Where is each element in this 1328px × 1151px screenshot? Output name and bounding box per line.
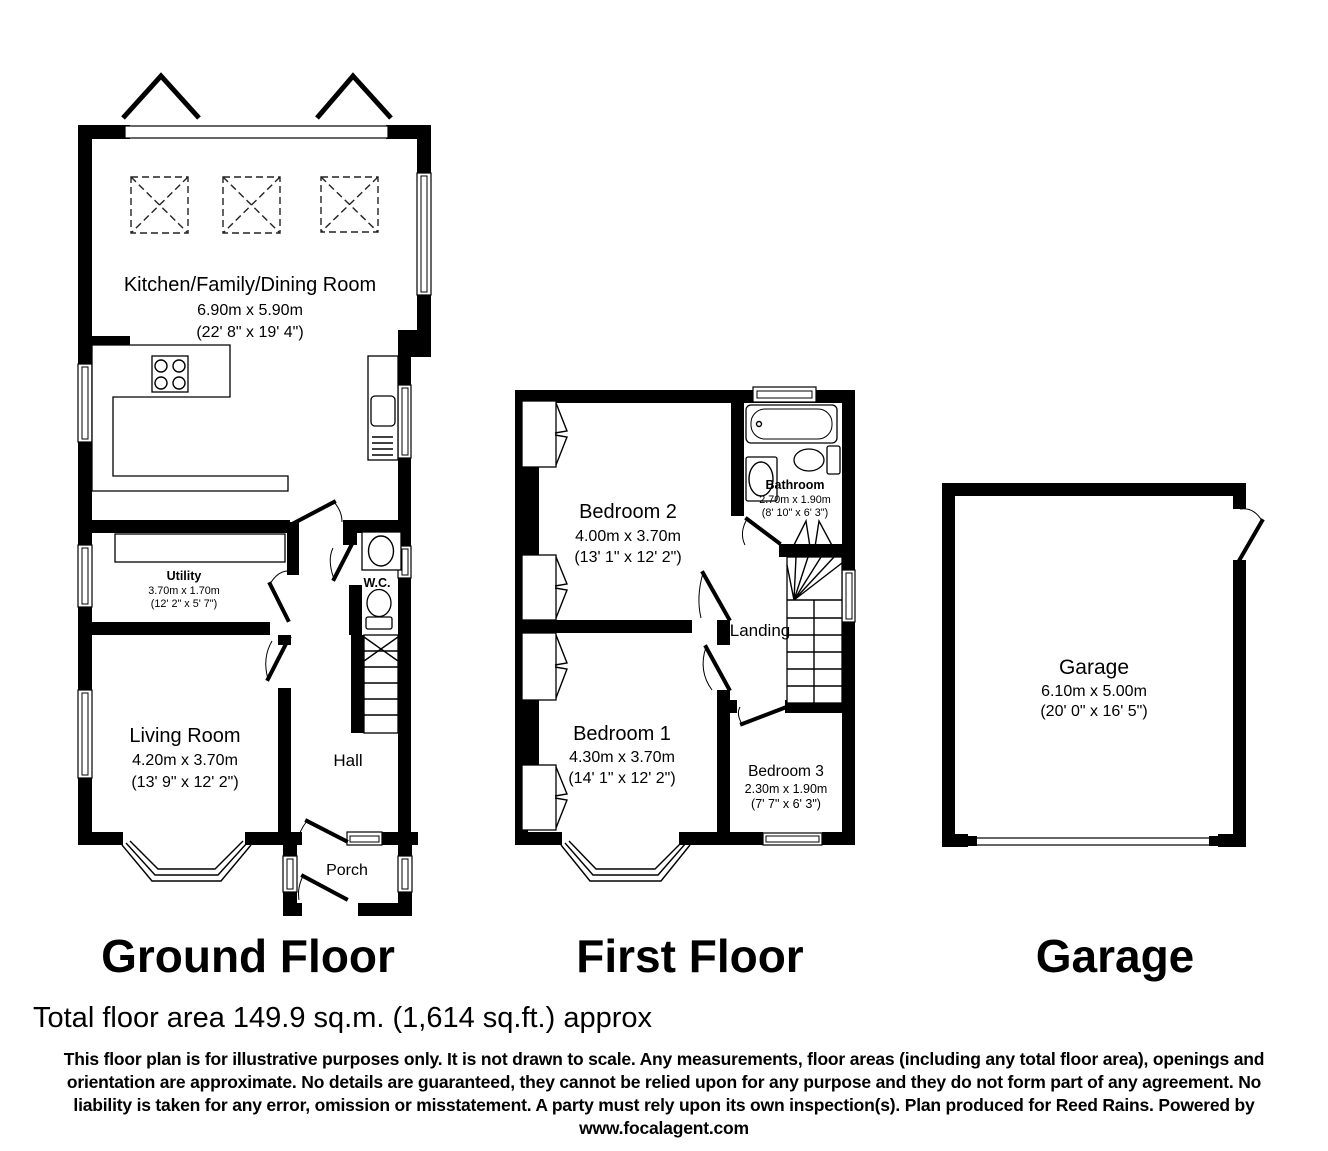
bathroom-label: Bathroom (765, 478, 824, 492)
utility-label: Utility (167, 569, 202, 583)
rooflight-icon (223, 177, 280, 233)
kitchen-dim-m: 6.90m x 5.90m (197, 302, 303, 319)
utility-counter (115, 534, 285, 562)
bedroom3-label: Bedroom 3 (748, 763, 824, 780)
garage-title: Garage (1036, 929, 1195, 983)
bedroom2-dim-ft: (13' 1" x 12' 2") (574, 549, 681, 566)
door (703, 647, 729, 690)
door (294, 502, 342, 523)
ground-floor-walls (78, 125, 431, 916)
bedroom2-label: Bedroom 2 (579, 501, 677, 523)
wardrobe-icon (522, 555, 567, 620)
ground-floor-title: Ground Floor (101, 929, 395, 983)
stairs-icon (364, 635, 398, 733)
door (299, 876, 347, 900)
utility-dim-m: 3.70m x 1.70m (148, 585, 219, 597)
living-room-label: Living Room (129, 725, 240, 747)
stairs-icon (787, 557, 842, 703)
garage-door (968, 836, 1218, 846)
bedroom2-dim-m: 4.00m x 3.70m (575, 528, 681, 545)
window (347, 832, 382, 845)
floor-plan-page: Kitchen/Family/Dining Room 6.90m x 5.90m… (0, 0, 1328, 1151)
bedroom1-dim-m: 4.30m x 3.70m (569, 749, 675, 766)
porch-label: Porch (326, 862, 368, 879)
bathroom-dim-ft: (8' 10" x 6' 3") (762, 507, 828, 519)
roof-arrow-icon (123, 76, 199, 118)
window (842, 570, 855, 622)
bath-icon (746, 405, 837, 443)
roof-arrow-icon (317, 76, 391, 118)
basin-icon (362, 532, 401, 570)
landing-label: Landing (730, 621, 791, 640)
wardrobe-icon (522, 401, 567, 467)
bay-window (122, 841, 251, 881)
kitchen-counter (92, 345, 288, 491)
window (283, 856, 297, 892)
wc-label: W.C. (363, 576, 390, 590)
garage-dim-ft: (20' 0" x 16' 5") (1040, 703, 1147, 720)
hall-label: Hall (333, 751, 362, 770)
disclaimer-line: orientation are approximate. No details … (0, 1071, 1328, 1094)
toilet-icon (794, 446, 840, 474)
disclaimer-line: This floor plan is for illustrative purp… (0, 1048, 1328, 1071)
bay-window (561, 841, 690, 881)
door (699, 573, 729, 619)
toilet-icon (366, 590, 392, 630)
first-floor-title: First Floor (576, 929, 803, 983)
disclaimer-line: www.focalagent.com (0, 1117, 1328, 1140)
window (78, 690, 92, 778)
kitchen-dim-ft: (22' 8" x 19' 4") (196, 324, 303, 341)
window (398, 856, 412, 892)
kitchen-bifold-opening (125, 126, 388, 138)
wardrobe-icon (522, 633, 567, 700)
door (266, 638, 289, 679)
door (330, 546, 351, 579)
bedroom3-dim-m: 2.30m x 1.90m (745, 782, 828, 796)
window (398, 385, 411, 458)
sink-icon (368, 356, 398, 460)
bedroom1-dim-ft: (14' 1" x 12' 2") (568, 770, 675, 787)
wardrobe-icon (522, 765, 567, 830)
bedroom1-label: Bedroom 1 (573, 723, 671, 745)
utility-dim-ft: (12' 2" x 5' 7") (151, 598, 217, 610)
disclaimer-line: liability is taken for any error, omissi… (0, 1094, 1328, 1117)
door (742, 519, 779, 545)
ground-floor-plan: Kitchen/Family/Dining Room 6.90m x 5.90m… (78, 76, 431, 916)
bathroom-dim-m: 2.70m x 1.90m (759, 494, 830, 506)
door (298, 821, 346, 841)
kitchen-label: Kitchen/Family/Dining Room (124, 274, 376, 296)
disclaimer: This floor plan is for illustrative purp… (0, 1048, 1328, 1140)
bedroom3-dim-ft: (7' 7" x 6' 3") (751, 797, 821, 811)
rooflight-icon (321, 177, 378, 232)
window (417, 173, 431, 295)
door (270, 571, 288, 620)
hob-icon (152, 356, 188, 392)
window (763, 833, 822, 845)
window (78, 364, 92, 442)
window (78, 545, 92, 607)
window (753, 387, 816, 402)
garage-dim-m: 6.10m x 5.00m (1041, 683, 1147, 700)
living-room-dim-ft: (13' 9" x 12' 2") (131, 774, 238, 791)
garage-plan: Garage 6.10m x 5.00m (20' 0" x 16' 5") (942, 483, 1262, 847)
rooflight-icon (131, 177, 188, 233)
living-room-dim-m: 4.20m x 3.70m (132, 752, 238, 769)
garage-label: Garage (1059, 656, 1129, 679)
door (738, 707, 784, 724)
first-floor-plan: Bedroom 2 4.00m x 3.70m (13' 1" x 12' 2"… (515, 387, 855, 881)
total-floor-area: Total floor area 149.9 sq.m. (1,614 sq.f… (33, 1002, 652, 1035)
